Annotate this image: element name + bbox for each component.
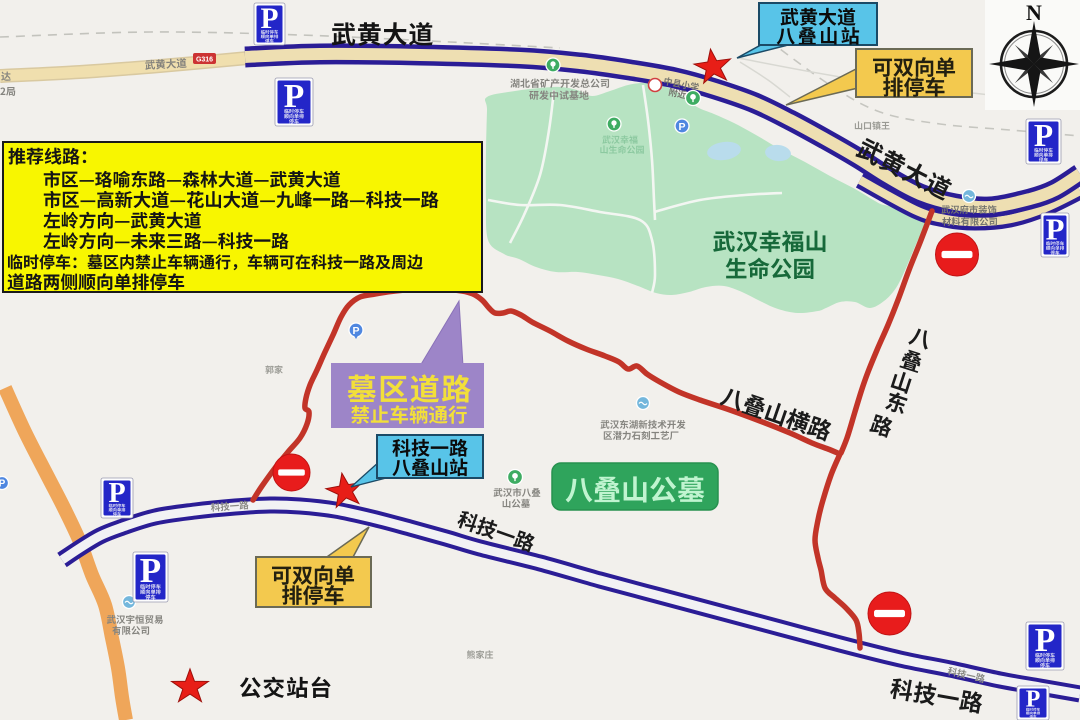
svg-text:P: P — [1034, 118, 1053, 153]
svg-text:N: N — [1026, 0, 1042, 25]
svg-text:P: P — [0, 479, 6, 490]
svg-text:P: P — [678, 121, 685, 133]
svg-text:G316: G316 — [196, 57, 213, 64]
